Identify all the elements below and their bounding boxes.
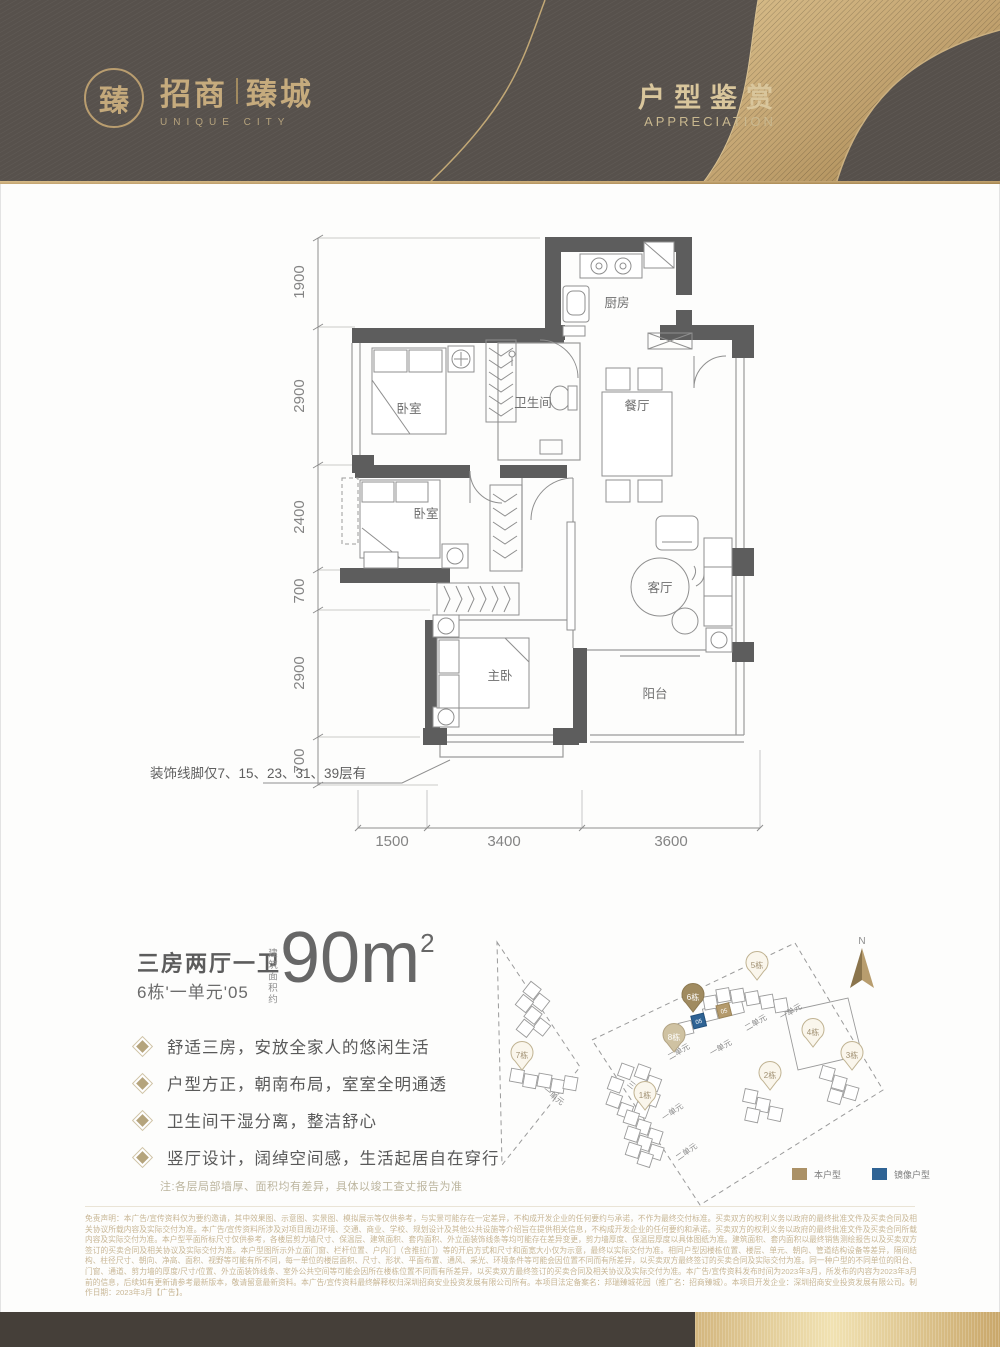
floorplan-drawing: 1900 2900 2400 700 2900 700 1500 3400 36… — [120, 230, 780, 850]
dim-bottom-3400: 3400 — [487, 833, 520, 850]
feature-text: 户型方正，朝南布局，室室全明通透 — [167, 1071, 447, 1095]
room-label-dining: 餐厅 — [624, 398, 649, 413]
brand-divider — [236, 78, 238, 104]
feature-text: 舒适三房，安放全家人的悠闲生活 — [167, 1034, 430, 1058]
svg-text:1栋: 1栋 — [639, 1090, 651, 1100]
feature-text: 竖厅设计，阔绰空间感，生活起居自在穿行 — [167, 1145, 500, 1169]
diamond-bullet-icon — [136, 1077, 149, 1090]
svg-text:8栋: 8栋 — [668, 1032, 680, 1042]
section-subtitle: APPRECIATION — [600, 114, 820, 129]
diamond-bullet-icon — [136, 1040, 149, 1053]
dim-left-2900b: 2900 — [291, 656, 308, 689]
dimension-labels: 1900 2900 2400 700 2900 700 1500 3400 36… — [291, 265, 688, 850]
pin-building-6-highlighted: 6栋 — [682, 984, 704, 1012]
entrance-label: 一单元 — [660, 1101, 685, 1123]
section-title: 户型鉴赏 — [600, 76, 820, 115]
room-label-bedroom2: 卧室 — [413, 506, 438, 521]
room-label-living: 客厅 — [647, 580, 672, 595]
flyer-page: 臻 招商 臻城 UNIQUE CITY 户型鉴赏 APPRECIATION — [0, 0, 1000, 1347]
bedroom2-furniture — [360, 480, 522, 571]
siteplan-map: 05 05 一单元 三单元 二单元 一单元 二单元 一单元 一单元 二单元 7栋… — [480, 930, 940, 1210]
master-furniture — [433, 583, 529, 727]
feature-item: 卫生间干湿分离，整洁舒心 — [138, 1108, 377, 1132]
dim-left-2900a: 2900 — [291, 379, 308, 412]
area-value: 90m2 — [280, 922, 435, 994]
unit-number: 6栋'一单元'05 — [137, 978, 249, 1003]
room-label-bath: 卫生间 — [514, 396, 552, 410]
door-swings — [470, 340, 726, 520]
dim-left-2400: 2400 — [291, 500, 308, 533]
feature-text: 卫生间干湿分离，整洁舒心 — [167, 1108, 377, 1132]
svg-text:2栋: 2栋 — [764, 1070, 776, 1080]
diamond-bullet-icon — [136, 1151, 149, 1164]
svg-text:5栋: 5栋 — [751, 960, 763, 970]
entrance-label: 二单元 — [674, 1141, 699, 1163]
dim-bottom-3600: 3600 — [654, 833, 687, 850]
pin-building-5: 5栋 — [746, 952, 768, 980]
molding-note: 装饰线脚仅7、15、23、31、39层有 — [150, 766, 366, 781]
room-label-balcony: 阳台 — [642, 686, 667, 701]
pin-building-4: 4栋 — [802, 1019, 824, 1047]
header-banner: 臻 招商 臻城 UNIQUE CITY 户型鉴赏 APPRECIATION — [0, 0, 1000, 184]
brand-name-left: 招商 — [160, 69, 228, 114]
area-exponent: 2 — [420, 928, 434, 958]
pin-building-3: 3栋 — [841, 1042, 863, 1070]
legend-this-label: 本户型 — [814, 1169, 841, 1180]
svg-text:6栋: 6栋 — [687, 992, 699, 1002]
pin-building-2: 2栋 — [759, 1062, 781, 1090]
brand-wordmark: 招商 臻城 UNIQUE CITY — [160, 69, 314, 128]
dim-bottom-1500: 1500 — [375, 833, 408, 850]
dim-left-700a: 700 — [291, 578, 308, 603]
building-footprints — [502, 978, 862, 1170]
room-label-master: 主卧 — [487, 669, 512, 683]
brand-name-right: 臻城 — [246, 69, 314, 114]
feature-item: 竖厅设计，阔绰空间感，生活起居自在穿行 — [138, 1145, 500, 1169]
bedroom1-furniture — [372, 340, 516, 434]
entrance-label: 一单元 — [708, 1037, 734, 1058]
footer-dark-bar — [0, 1312, 695, 1347]
area-number: 90m — [280, 918, 420, 998]
bay-window — [342, 478, 358, 544]
seal-character: 臻 — [99, 76, 129, 120]
separator-line — [85, 1206, 915, 1207]
legend-this-swatch — [792, 1168, 807, 1180]
siteplan-legend: 本户型 镜像户型 — [792, 1168, 930, 1180]
compass-icon: N — [850, 936, 874, 988]
brand-logo: 臻 招商 臻城 UNIQUE CITY — [84, 68, 314, 128]
svg-text:3栋: 3栋 — [846, 1050, 858, 1060]
legend-mirror-label: 镜像户型 — [894, 1169, 930, 1180]
footer-gold-bar — [695, 1312, 1000, 1347]
dining-furniture — [602, 368, 672, 502]
unit-note: 注:各层局部墙厚、面积均有差异，具体以竣工查丈报告为准 — [160, 1178, 463, 1194]
pin-building-7: 7栋 — [511, 1042, 533, 1070]
room-label-bedroom1: 卧室 — [396, 401, 421, 416]
legend-mirror-swatch — [872, 1168, 887, 1180]
area-label: 建筑面积约 — [264, 948, 278, 1006]
room-label-kitchen: 厨房 — [604, 295, 629, 310]
svg-text:4栋: 4栋 — [807, 1027, 819, 1037]
dim-left-1900: 1900 — [291, 265, 308, 298]
svg-text:7栋: 7栋 — [516, 1050, 528, 1060]
brand-name-en: UNIQUE CITY — [160, 117, 314, 128]
feature-item: 舒适三房，安放全家人的悠闲生活 — [138, 1034, 430, 1058]
brand-seal-icon: 臻 — [84, 68, 144, 128]
disclaimer-text: 免责声明：本广告/宣传资料仅为要约邀请，其中效果图、示意图、实景图、模拟展示等仅… — [85, 1214, 917, 1299]
diamond-bullet-icon — [136, 1114, 149, 1127]
layout-title: 三房两厅一卫 — [137, 946, 281, 978]
entrance-label: 二单元 — [743, 1012, 769, 1033]
feature-item: 户型方正，朝南布局，室室全明通透 — [138, 1071, 447, 1095]
compass-north-label: N — [858, 936, 865, 947]
